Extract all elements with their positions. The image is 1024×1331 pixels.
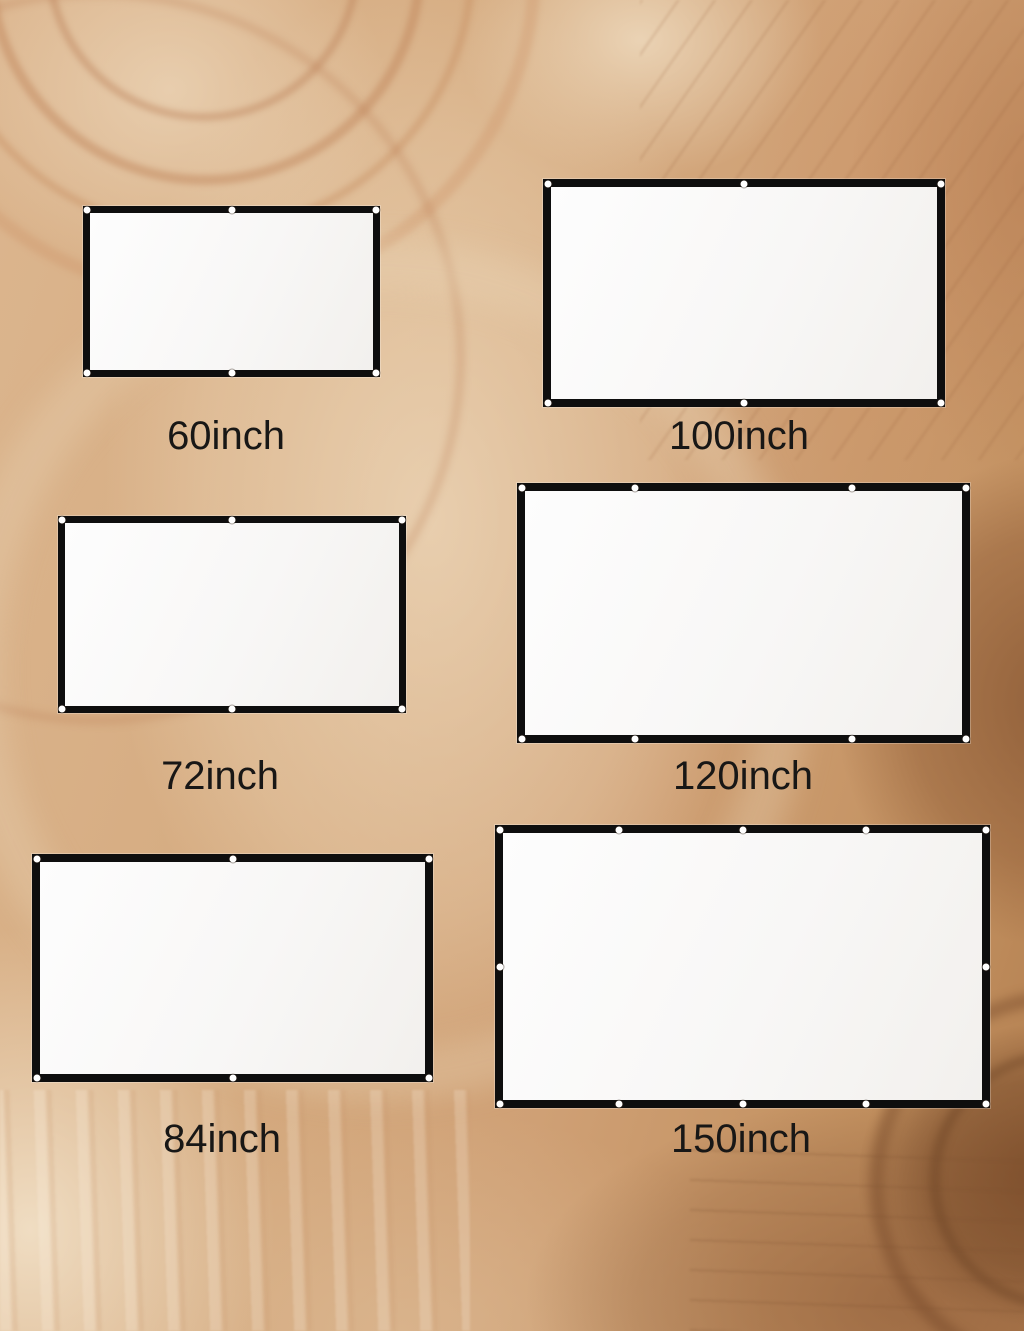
screen-size-item-72inch: 72inch xyxy=(58,516,406,713)
grommet-dot xyxy=(228,207,235,214)
screen-size-item-84inch: 84inch xyxy=(32,854,433,1082)
projector-screen-surface xyxy=(525,491,962,735)
grommet-dot xyxy=(496,963,503,970)
grommet-dot xyxy=(937,399,944,406)
grommet-dot xyxy=(33,855,40,862)
projector-screen-surface xyxy=(551,187,937,399)
grommet-dot xyxy=(544,180,551,187)
grommet-dot xyxy=(399,517,406,524)
grommet-dot xyxy=(863,826,870,833)
grommet-dot xyxy=(615,1100,622,1107)
grommet-dot xyxy=(59,517,66,524)
grommet-dot xyxy=(229,517,236,524)
grommet-dot xyxy=(399,706,406,713)
size-label: 84inch xyxy=(163,1119,281,1159)
grommet-dot xyxy=(84,370,91,377)
screen-size-item-150inch: 150inch xyxy=(495,825,990,1108)
projector-screen-frame xyxy=(58,516,406,713)
projector-screen-surface xyxy=(40,862,425,1074)
size-label: 120inch xyxy=(673,756,813,796)
screen-size-item-60inch: 60inch xyxy=(83,206,380,377)
grommet-dot xyxy=(496,1100,503,1107)
grommet-dot xyxy=(741,399,748,406)
grommet-dot xyxy=(229,706,236,713)
grommet-dot xyxy=(373,207,380,214)
projector-screen-frame xyxy=(83,206,380,377)
grommet-dot xyxy=(631,735,638,742)
grommet-dot xyxy=(937,180,944,187)
size-label: 150inch xyxy=(671,1119,811,1159)
grommet-dot xyxy=(741,180,748,187)
projector-screen-frame xyxy=(517,483,970,743)
grommet-dot xyxy=(84,207,91,214)
grommet-dot xyxy=(739,1100,746,1107)
grommet-dot xyxy=(863,1100,870,1107)
grommet-dot xyxy=(631,484,638,491)
grommet-dot xyxy=(518,484,525,491)
grommet-dot xyxy=(33,1074,40,1081)
wood-grain-streaks xyxy=(690,1140,1024,1331)
projector-screen-surface xyxy=(65,523,399,706)
size-label: 100inch xyxy=(669,416,809,456)
projector-screen-surface xyxy=(503,833,982,1100)
projector-screen-frame xyxy=(543,179,945,407)
product-size-comparison-image: 60inch 100inch 72inch 120inch 84inch 150… xyxy=(0,0,1024,1331)
grommet-dot xyxy=(229,855,236,862)
projector-screen-surface xyxy=(90,213,373,370)
screen-size-item-100inch: 100inch xyxy=(543,179,945,407)
grommet-dot xyxy=(615,826,622,833)
grommet-dot xyxy=(229,1074,236,1081)
size-label: 60inch xyxy=(167,416,285,456)
grommet-dot xyxy=(228,370,235,377)
grommet-dot xyxy=(849,735,856,742)
grommet-dot xyxy=(739,826,746,833)
grommet-dot xyxy=(962,735,969,742)
grommet-dot xyxy=(544,399,551,406)
grommet-dot xyxy=(962,484,969,491)
projector-screen-frame xyxy=(32,854,433,1082)
grommet-dot xyxy=(982,1100,989,1107)
grommet-dot xyxy=(982,963,989,970)
size-label: 72inch xyxy=(161,756,279,796)
grommet-dot xyxy=(496,826,503,833)
projector-screen-frame xyxy=(495,825,990,1108)
grommet-dot xyxy=(425,855,432,862)
grommet-dot xyxy=(425,1074,432,1081)
grommet-dot xyxy=(373,370,380,377)
grommet-dot xyxy=(982,826,989,833)
grommet-dot xyxy=(849,484,856,491)
grommet-dot xyxy=(518,735,525,742)
grommet-dot xyxy=(59,706,66,713)
screen-size-item-120inch: 120inch xyxy=(517,483,970,743)
